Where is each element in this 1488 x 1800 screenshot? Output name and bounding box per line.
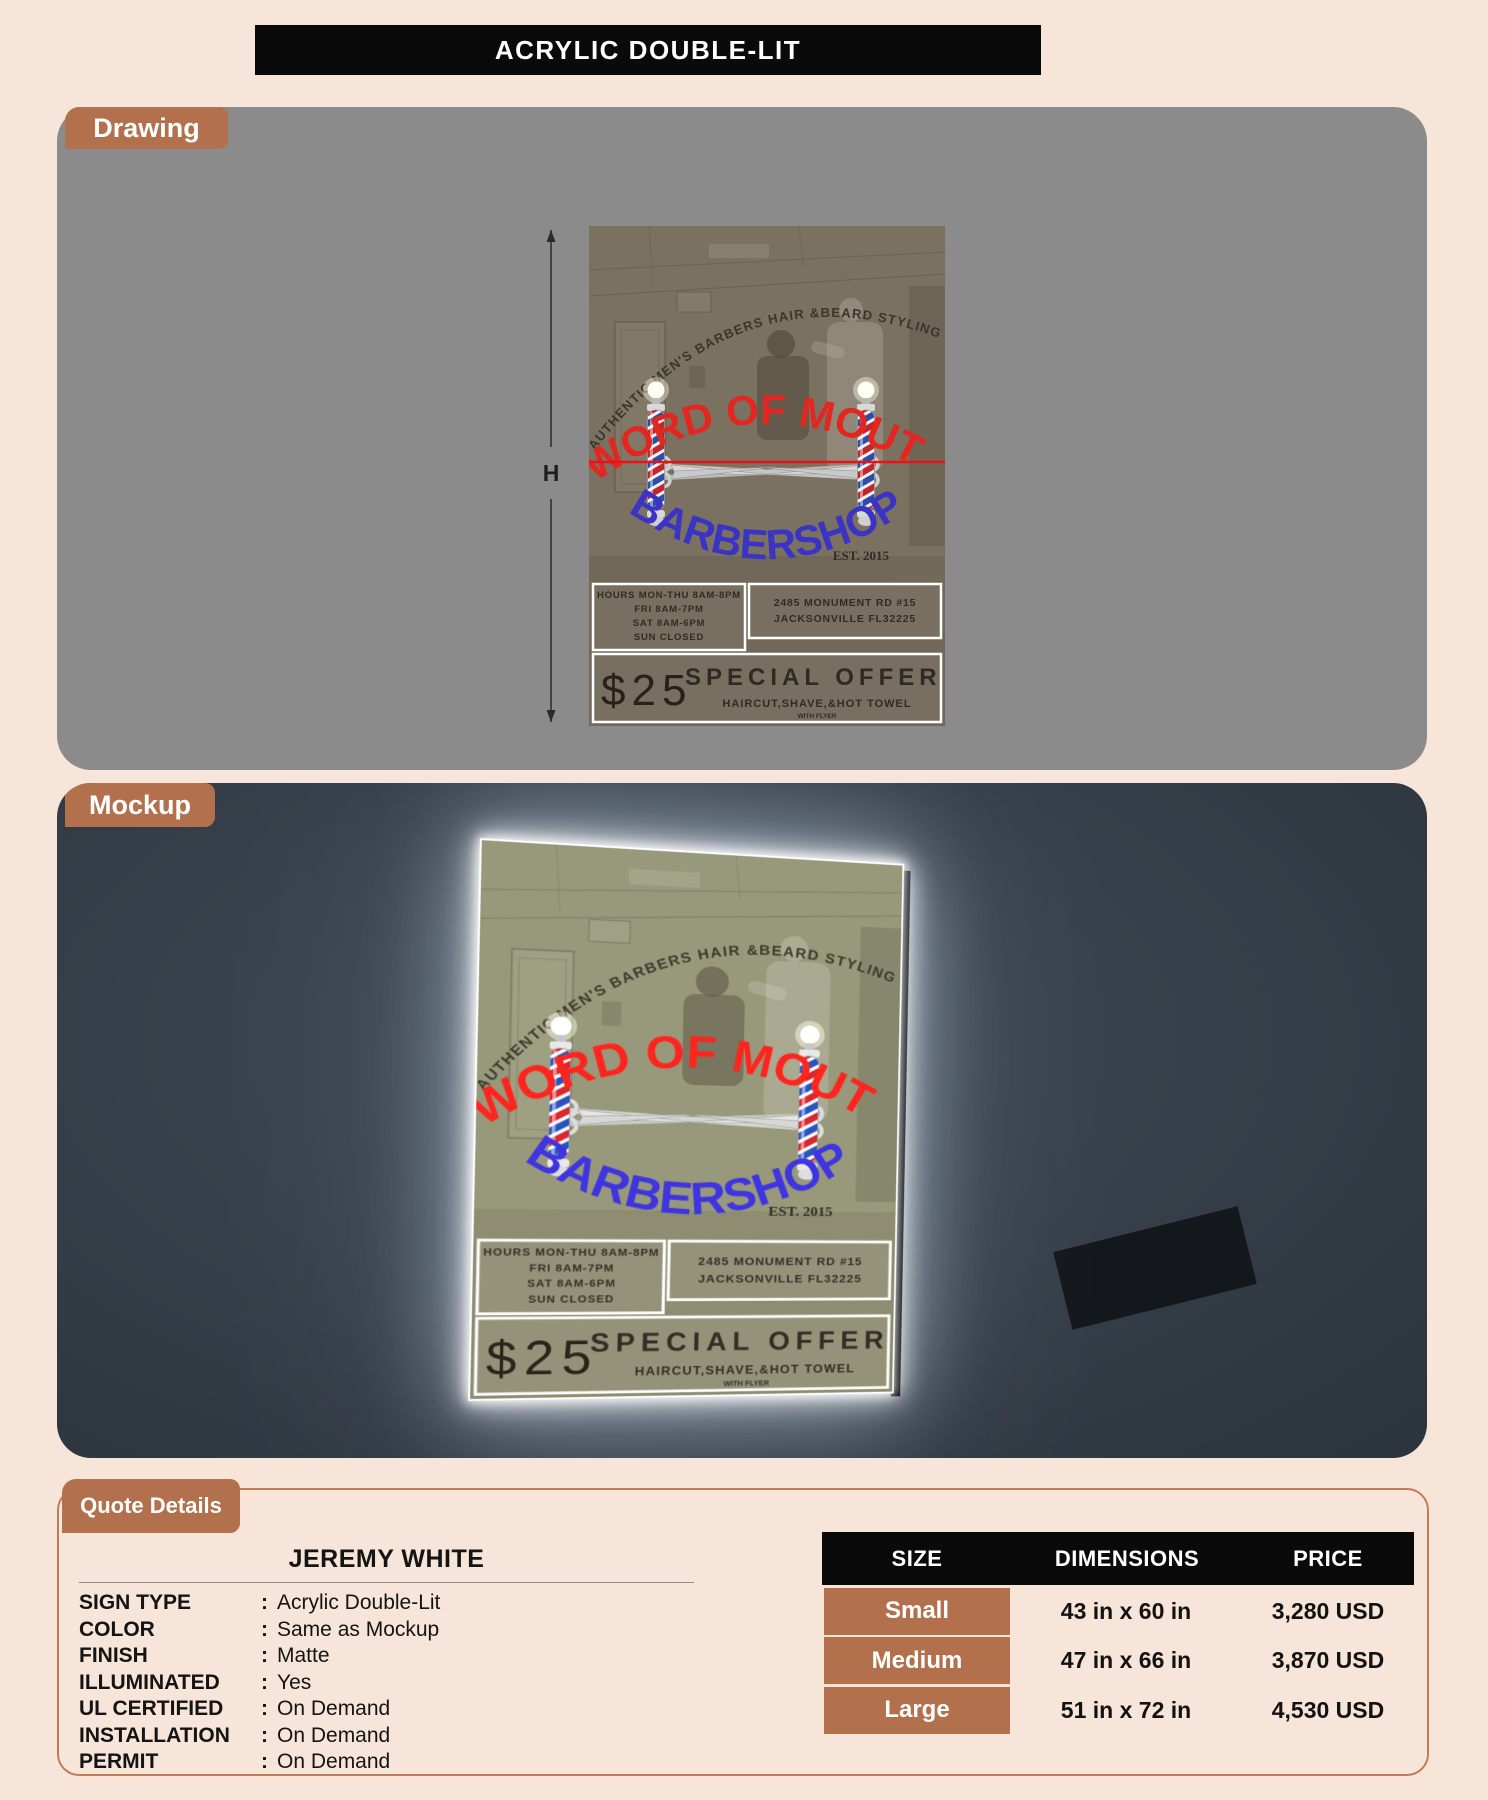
sign-mockup: AUTHENTIC MEN'S BARBERS HAIR &BEARD STYL… <box>470 840 902 1399</box>
spec-label: ILLUMINATED <box>79 1671 261 1695</box>
dimensions-value: 47 in x 66 in <box>1010 1647 1242 1674</box>
spec-label: UL CERTIFIED <box>79 1697 261 1721</box>
sign-hours-line: SAT 8AM-6PM <box>527 1278 616 1290</box>
spec-row-sign-type: SIGN TYPE : Acrylic Double-Lit <box>79 1590 719 1617</box>
spec-row-permit: PERMIT : On Demand <box>79 1749 719 1776</box>
spec-value: On Demand <box>277 1697 390 1721</box>
spec-row-color: COLOR : Same as Mockup <box>79 1617 719 1644</box>
sign-address-line: JACKSONVILLE FL32225 <box>698 1272 862 1285</box>
spec-value: On Demand <box>277 1724 390 1748</box>
sign-offer-price: $25 <box>601 666 692 715</box>
mockup-section-tab: Mockup <box>65 783 215 827</box>
sign-offer-note: WITH FLYER <box>797 713 836 720</box>
column-header-dimensions: DIMENSIONS <box>1012 1546 1242 1572</box>
spec-value: Acrylic Double-Lit <box>277 1591 440 1615</box>
sign-hours-line: SUN CLOSED <box>528 1294 614 1306</box>
sign-address-line: 2485 MONUMENT RD #15 <box>774 597 917 609</box>
quote-details-tab: Quote Details <box>62 1479 240 1533</box>
spec-row-finish: FINISH : Matte <box>79 1643 719 1670</box>
mockup-panel: AUTHENTIC MEN'S BARBERS HAIR &BEARD STYL… <box>57 783 1427 1458</box>
sign-established: EST. 2015 <box>833 548 890 563</box>
sign-hours-line: FRI 8AM-7PM <box>529 1263 614 1275</box>
spec-value: Yes <box>277 1671 311 1695</box>
spec-label: PERMIT <box>79 1750 261 1774</box>
sign-hours-line: HOURS MON-THU 8AM-8PM <box>597 590 741 601</box>
spec-value: Matte <box>277 1644 330 1668</box>
table-row: Large 51 in x 72 in 4,530 USD <box>822 1687 1414 1734</box>
sign-address-box <box>749 584 941 638</box>
sign-established: EST. 2015 <box>768 1205 833 1220</box>
table-row: Medium 47 in x 66 in 3,870 USD <box>822 1637 1414 1684</box>
sign-mockup-wrapper: AUTHENTIC MEN'S BARBERS HAIR &BEARD STYL… <box>470 840 902 1399</box>
column-header-price: PRICE <box>1242 1546 1414 1572</box>
spec-label: SIGN TYPE <box>79 1591 261 1615</box>
spec-label: INSTALLATION <box>79 1724 261 1748</box>
mockup-shadow-shape <box>1053 1206 1257 1330</box>
sign-offer-note: WITH FLYER <box>723 1379 769 1388</box>
spec-separator: : <box>261 1724 277 1748</box>
dimensions-value: 43 in x 60 in <box>1010 1598 1242 1625</box>
sign-address-box <box>668 1241 890 1300</box>
drawing-panel: Drawing W H <box>57 107 1427 770</box>
sign-hours-line: HOURS MON-THU 8AM-8PM <box>483 1247 659 1259</box>
sign-offer-price: $25 <box>485 1330 599 1386</box>
price-value: 3,870 USD <box>1242 1647 1414 1674</box>
spec-row-ul-certified: UL CERTIFIED : On Demand <box>79 1696 719 1723</box>
price-table: SIZE DIMENSIONS PRICE Small 43 in x 60 i… <box>822 1532 1414 1734</box>
spec-separator: : <box>261 1697 277 1721</box>
page-title: ACRYLIC DOUBLE-LIT <box>255 25 1041 75</box>
price-value: 3,280 USD <box>1242 1598 1414 1625</box>
spec-list: SIGN TYPE : Acrylic Double-Lit COLOR : S… <box>79 1590 719 1776</box>
barbershop-sign-artwork: AUTHENTIC MEN'S BARBERS HAIR &BEARD STYL… <box>589 226 945 726</box>
barbershop-sign-artwork: AUTHENTIC MEN'S BARBERS HAIR &BEARD STYL… <box>470 840 902 1399</box>
quote-details-panel: Quote Details JEREMY WHITE SIGN TYPE : A… <box>57 1488 1429 1776</box>
spec-separator: : <box>261 1750 277 1774</box>
spec-value: Same as Mockup <box>277 1618 439 1642</box>
price-table-header: SIZE DIMENSIONS PRICE <box>822 1532 1414 1585</box>
sign-offer-title: SPECIAL OFFER <box>590 1326 890 1358</box>
customer-name-divider <box>79 1582 694 1583</box>
spec-separator: : <box>261 1591 277 1615</box>
spec-value: On Demand <box>277 1750 390 1774</box>
sign-address-line: 2485 MONUMENT RD #15 <box>698 1255 863 1268</box>
spec-separator: : <box>261 1618 277 1642</box>
size-option-small[interactable]: Small <box>824 1588 1010 1635</box>
height-dimension-label: H <box>543 460 560 486</box>
spec-label: COLOR <box>79 1618 261 1642</box>
sign-hours-line: SUN CLOSED <box>634 632 704 643</box>
spec-separator: : <box>261 1671 277 1695</box>
spec-row-illuminated: ILLUMINATED : Yes <box>79 1670 719 1697</box>
table-row: Small 43 in x 60 in 3,280 USD <box>822 1588 1414 1635</box>
dimensions-value: 51 in x 72 in <box>1010 1697 1242 1724</box>
sign-offer-title: SPECIAL OFFER <box>685 664 942 691</box>
price-value: 4,530 USD <box>1242 1697 1414 1724</box>
sign-offer-subtitle: HAIRCUT,SHAVE,&HOT TOWEL <box>722 698 911 710</box>
sign-hours-line: SAT 8AM-6PM <box>633 618 706 629</box>
customer-name: JEREMY WHITE <box>79 1545 694 1574</box>
spec-row-installation: INSTALLATION : On Demand <box>79 1723 719 1750</box>
sign-hours-line: FRI 8AM-7PM <box>634 604 704 615</box>
size-option-large[interactable]: Large <box>824 1687 1010 1734</box>
column-header-size: SIZE <box>822 1546 1012 1572</box>
spec-label: FINISH <box>79 1644 261 1668</box>
spec-separator: : <box>261 1644 277 1668</box>
sign-drawing: AUTHENTIC MEN'S BARBERS HAIR &BEARD STYL… <box>589 226 945 726</box>
size-option-medium[interactable]: Medium <box>824 1637 1010 1684</box>
sign-address-line: JACKSONVILLE FL32225 <box>774 613 916 625</box>
